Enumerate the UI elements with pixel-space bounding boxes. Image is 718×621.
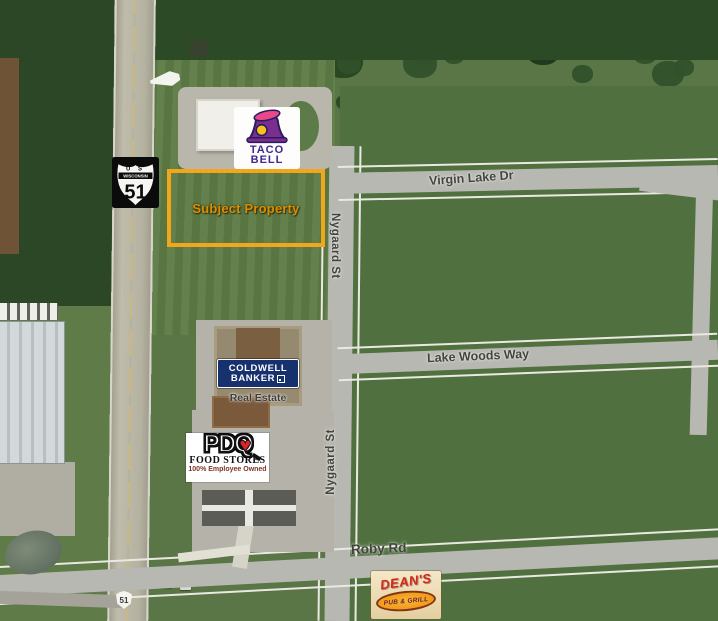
coldwell-banker-line2-row: BANKER	[231, 374, 285, 384]
dirt-field	[0, 58, 19, 254]
industrial-building	[0, 321, 65, 464]
us-51-shield-icon: U S WISCONSIN 51	[112, 157, 159, 208]
shield-us-text: U S	[126, 167, 145, 173]
shield-state-text: WISCONSIN	[123, 174, 148, 179]
deans-name-text: DEAN'S	[379, 570, 432, 592]
subject-property-label: Subject Property	[192, 201, 299, 216]
forest-top	[148, 0, 718, 60]
aerial-map: Subject Property U S WISCONSIN 51 TACO B…	[0, 0, 718, 621]
pdq-logo: PDQ ♥ FOOD STORES 100% Employee Owned	[186, 433, 269, 482]
deans-pub-grill-logo: DEAN'S PUB & GRILL	[371, 571, 441, 619]
us-51-road	[107, 0, 156, 621]
taco-bell-icon	[244, 109, 290, 145]
industrial-parking-lot	[0, 462, 75, 536]
deans-oval-badge: PUB & GRILL	[375, 588, 437, 613]
shed	[189, 39, 209, 57]
coldwell-banker-sign: COLDWELL BANKER	[217, 359, 299, 388]
heart-icon: ♥	[239, 434, 251, 458]
coldwell-banker-subtitle: Real Estate	[217, 392, 299, 404]
coldwell-banker-line2: BANKER	[231, 374, 275, 384]
pdq-employee-owned-text: 100% Employee Owned	[186, 466, 269, 473]
shield-route-number: 51	[124, 182, 146, 204]
street-label-nygaard-st-upper: Nygaard St	[329, 213, 341, 279]
subject-property-outline: Subject Property	[167, 169, 325, 247]
coldwell-banker-mark-icon	[277, 375, 285, 383]
gas-station-canopy	[202, 490, 296, 526]
us-51-highway-shield: U S WISCONSIN 51	[112, 157, 159, 208]
taco-bell-logo: TACO BELL	[234, 107, 300, 169]
street-label-roby-rd: Roby Rd	[351, 540, 407, 557]
deans-pub-grill-text: PUB & GRILL	[383, 596, 428, 607]
mini-51-route-number: 51	[120, 596, 129, 605]
street-label-nygaard-st-lower: Nygaard St	[325, 429, 337, 495]
taco-bell-text-line2: BELL	[251, 155, 284, 165]
loading-dock-trucks	[0, 303, 58, 320]
coldwell-banker-line1: COLDWELL	[229, 364, 288, 374]
